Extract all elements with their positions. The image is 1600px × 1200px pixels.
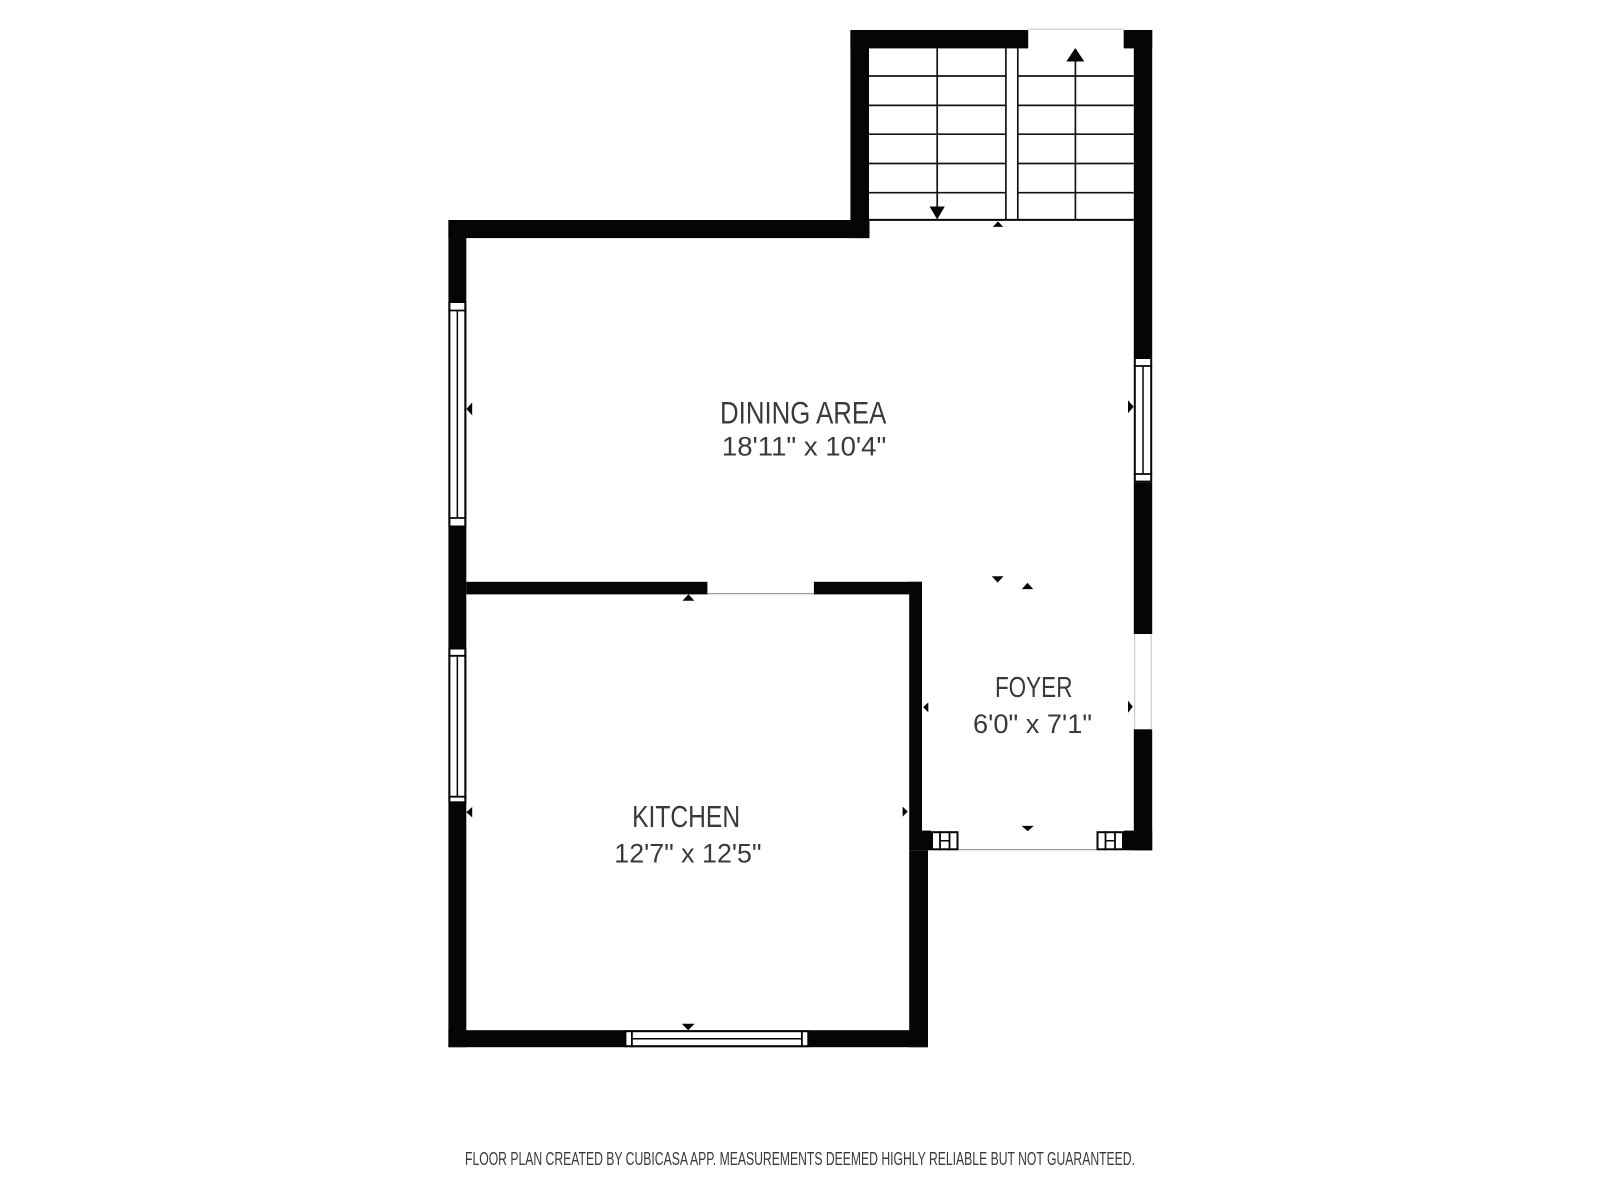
svg-text:6'0" x 7'1": 6'0" x 7'1" (973, 709, 1092, 739)
svg-text:FOYER: FOYER (995, 671, 1073, 703)
svg-text:KITCHEN: KITCHEN (632, 801, 740, 834)
svg-text:FLOOR PLAN CREATED BY CUBICASA: FLOOR PLAN CREATED BY CUBICASA APP. MEAS… (465, 1149, 1135, 1169)
svg-text:18'11" x 10'4": 18'11" x 10'4" (722, 432, 886, 462)
svg-text:12'7" x 12'5": 12'7" x 12'5" (614, 838, 761, 868)
svg-text:DINING AREA: DINING AREA (720, 395, 887, 431)
